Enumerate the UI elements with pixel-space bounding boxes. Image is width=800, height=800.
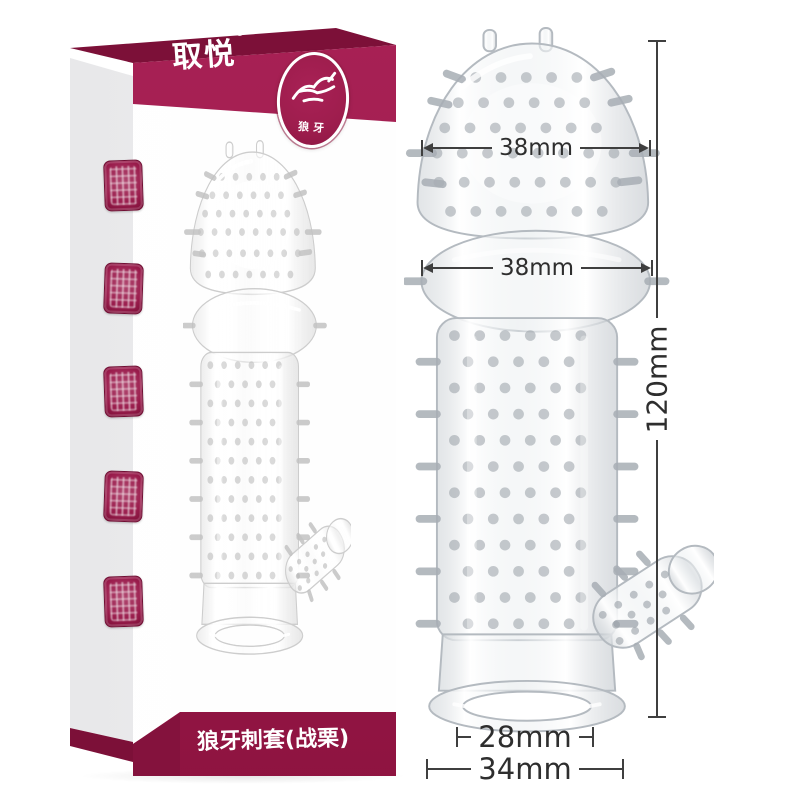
- dimension-arrow-left-icon: [423, 143, 433, 153]
- seal-stamp-icon: [103, 262, 144, 314]
- dimension-label: 38mm: [493, 255, 581, 281]
- dimension-line: [656, 440, 658, 716]
- dimension-line: [581, 267, 641, 269]
- registered-trademark: ®: [234, 27, 247, 39]
- seal-glyphs: [109, 166, 137, 206]
- dimension-line: [656, 42, 658, 318]
- dimension-end-tick: [622, 759, 624, 779]
- dimension-end-tick: [648, 716, 666, 718]
- dimension-line: [579, 768, 622, 770]
- seal-stamp-icon: [103, 575, 144, 627]
- brand-logo: 取悦®: [171, 27, 250, 76]
- seal-stamp-icon: [103, 470, 144, 522]
- dimension-label: 34mm: [471, 752, 578, 786]
- dimension-inner-diameter: 28mm: [456, 720, 594, 754]
- dimension-label: 28mm: [471, 720, 578, 754]
- wolf-sketch-icon: [285, 63, 342, 113]
- dimension-line: [433, 147, 492, 149]
- dimension-line: [579, 736, 592, 738]
- dimension-bulb-width: 38mm: [421, 253, 653, 283]
- badge-label: 狼牙: [298, 118, 329, 136]
- dimension-label-wrap: 120mm: [640, 318, 674, 440]
- seal-glyphs: [109, 477, 137, 517]
- dimension-label: 120mm: [641, 325, 674, 433]
- box-printed-product-drawing: [183, 140, 351, 664]
- dimension-line: [458, 736, 471, 738]
- dimension-line: [580, 147, 639, 149]
- product-name-label: 狼牙刺套(战栗): [150, 719, 397, 757]
- dimension-head-width: 38mm: [421, 133, 651, 163]
- dimension-end-tick: [592, 727, 594, 747]
- seal-stamp-icon: [103, 365, 144, 417]
- seal-stamp-icon: [103, 159, 144, 211]
- dimension-line: [433, 267, 493, 269]
- seal-glyphs: [109, 582, 137, 622]
- dimension-label: 38mm: [492, 135, 580, 161]
- dimension-outer-diameter: 34mm: [426, 752, 624, 786]
- seal-glyphs: [109, 269, 137, 309]
- dimension-line: [428, 768, 471, 770]
- brand-logo-text: 取悦: [171, 36, 237, 75]
- dimension-arrow-left-icon: [423, 263, 433, 273]
- dimension-total-length: 120mm: [640, 40, 674, 718]
- seal-glyphs: [109, 372, 137, 412]
- product-listing-image: 取悦® 狼牙 狼牙刺套(战栗) 38mm 38mm: [0, 0, 800, 800]
